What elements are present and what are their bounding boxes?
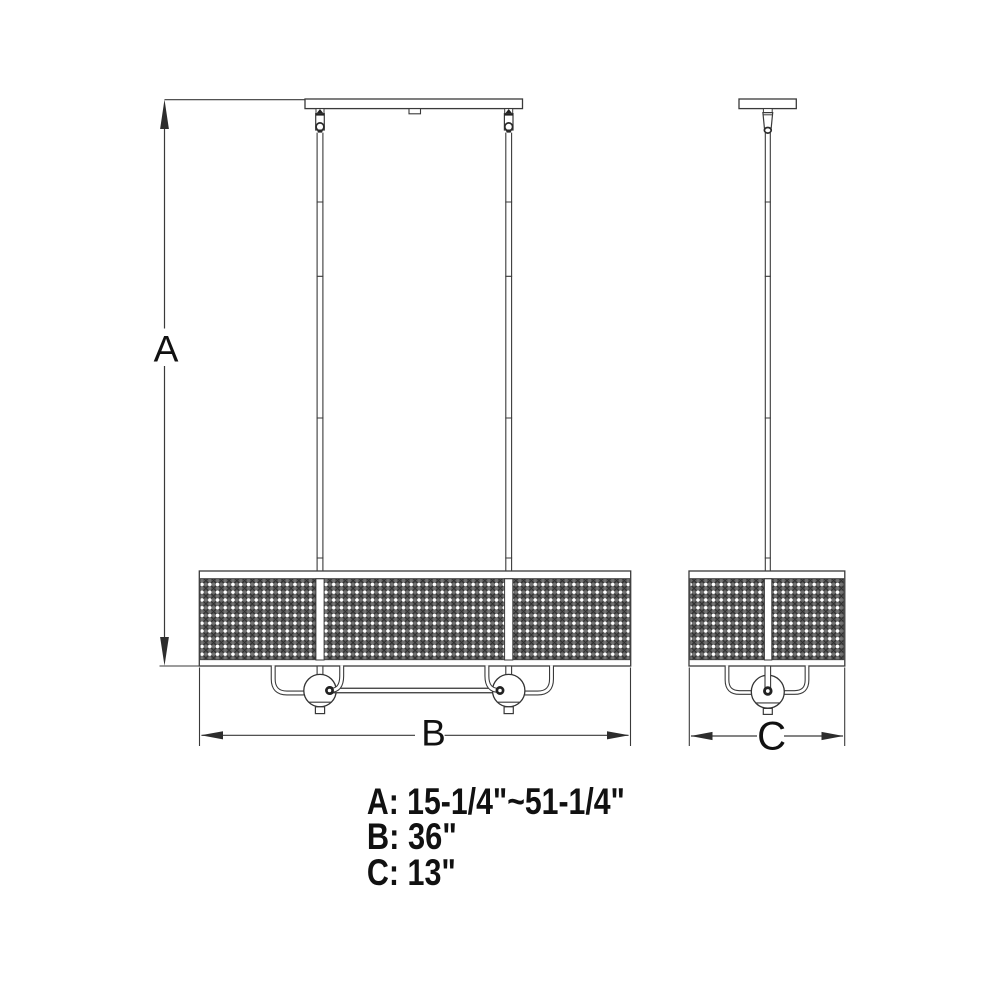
svg-text:C: C — [757, 715, 786, 759]
svg-text:B: 36": B: 36" — [367, 816, 457, 857]
svg-text:A: A — [154, 327, 179, 369]
svg-text:B: B — [421, 712, 446, 754]
svg-text:C: 13": C: 13" — [367, 852, 456, 893]
